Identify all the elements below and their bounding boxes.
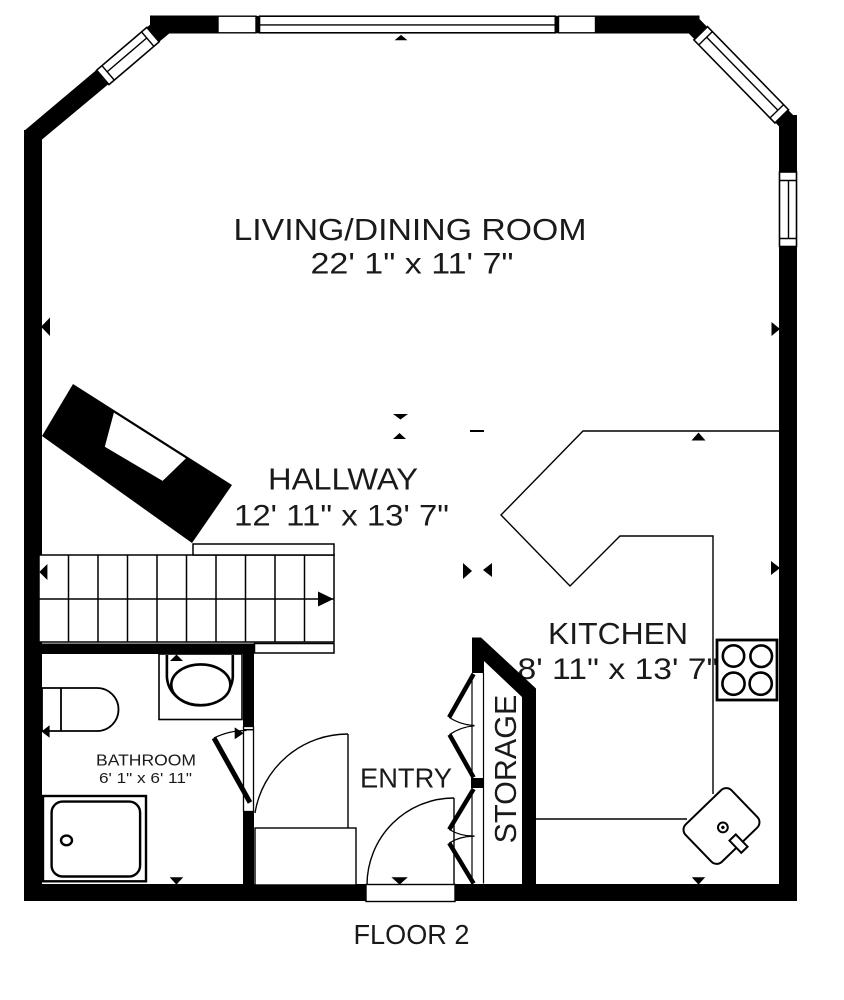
svg-text:12' 11" x 13' 7": 12' 11" x 13' 7" <box>234 500 449 533</box>
svg-text:22' 1" x 11' 7": 22' 1" x 11' 7" <box>311 248 514 281</box>
svg-text:ENTRY: ENTRY <box>360 763 452 794</box>
svg-text:FLOOR 2: FLOOR 2 <box>354 919 470 950</box>
svg-text:KITCHEN: KITCHEN <box>548 616 688 651</box>
svg-text:BATHROOM: BATHROOM <box>96 753 196 770</box>
svg-text:8' 11" x 13' 7": 8' 11" x 13' 7" <box>518 653 719 686</box>
svg-text:HALLWAY: HALLWAY <box>268 462 418 497</box>
svg-text:6' 1" x 6' 11": 6' 1" x 6' 11" <box>99 771 192 787</box>
svg-text:LIVING/DINING ROOM: LIVING/DINING ROOM <box>234 212 587 247</box>
svg-text:STORAGE: STORAGE <box>488 695 523 844</box>
